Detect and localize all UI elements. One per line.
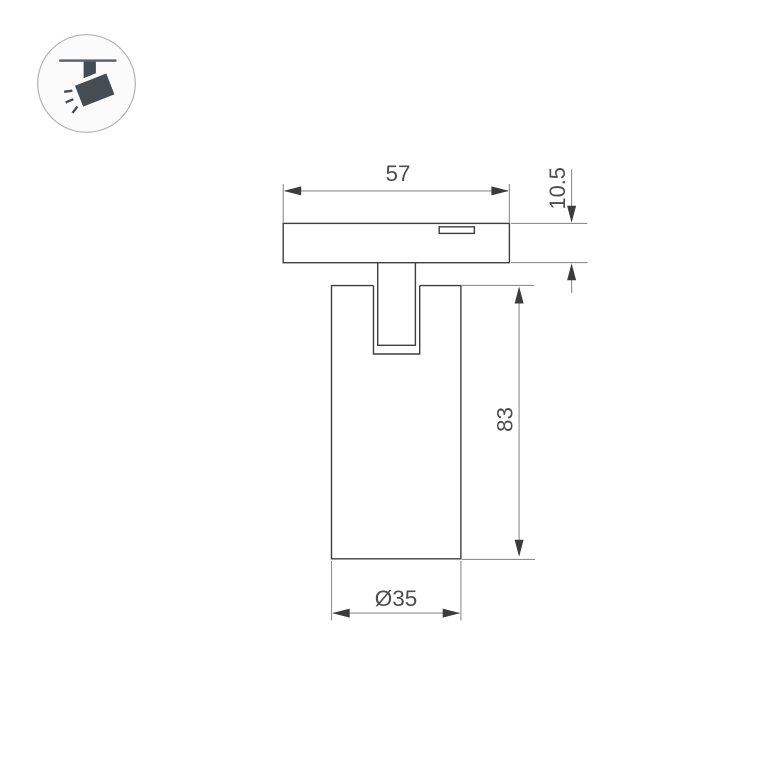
svg-text:83: 83 <box>493 407 518 432</box>
svg-text:57: 57 <box>385 161 410 186</box>
svg-text:10.5: 10.5 <box>545 167 570 209</box>
svg-text:Ø35: Ø35 <box>375 586 418 611</box>
